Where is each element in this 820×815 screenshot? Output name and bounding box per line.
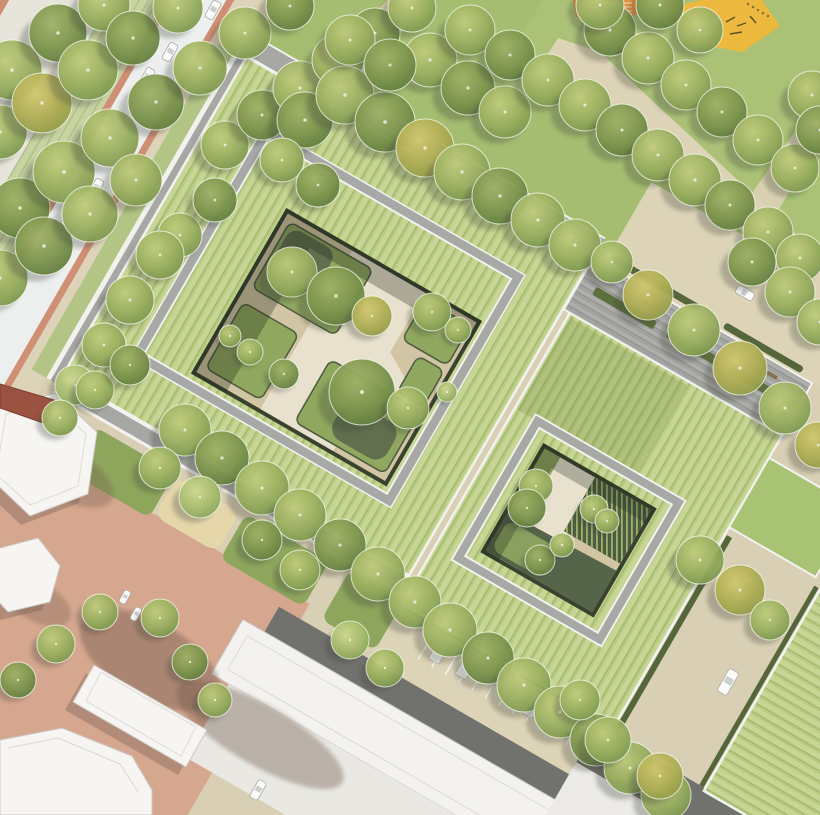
- site-plan-rendering: [0, 0, 820, 815]
- site-plan: [0, 0, 820, 815]
